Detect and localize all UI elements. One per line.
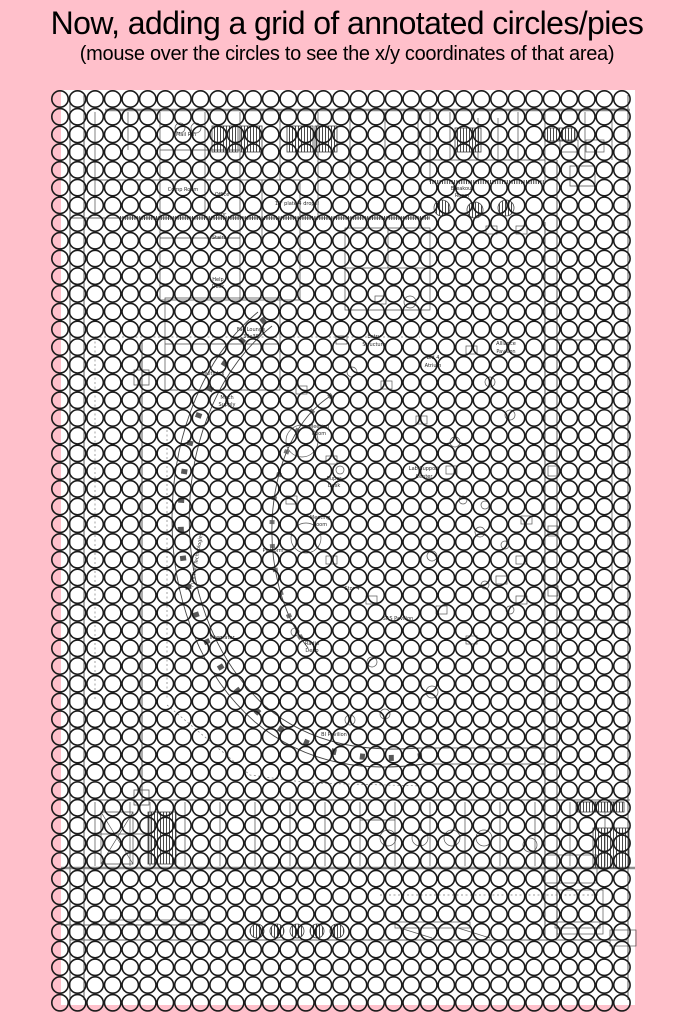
demo-page: Now, adding a grid of annotated circles/… [0,0,694,1024]
page-subtitle: (mouse over the circles to see the x/y c… [0,43,694,65]
annotated-floorplan: Mail RmComp RoomOfficeStorStairs18' plat… [0,0,694,1024]
plan-label: Lab Support [409,466,439,472]
page-title: Now, adding a grid of annotated circles/… [0,0,694,43]
plan-label: Help [212,277,223,283]
